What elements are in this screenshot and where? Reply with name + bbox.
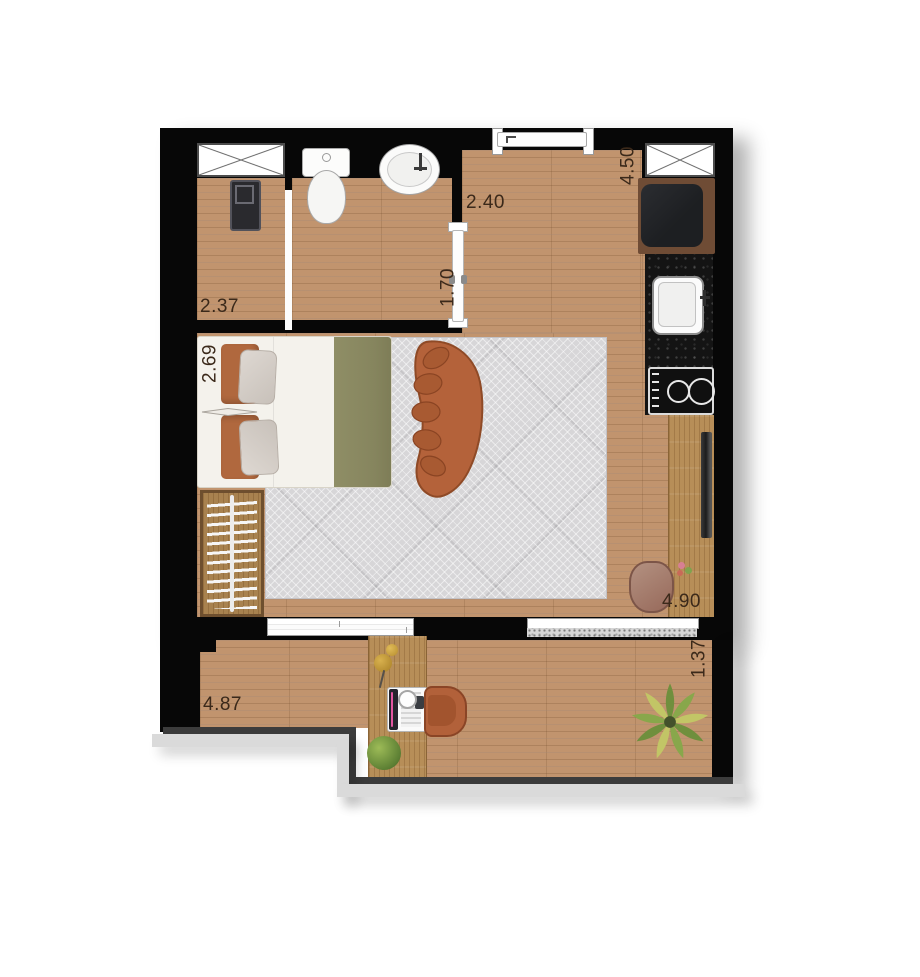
desk-lamp-icon: [372, 642, 398, 672]
toilet-flush-button: [322, 153, 331, 162]
fridge-icon: [641, 184, 703, 247]
kitchen-sink-icon: [652, 276, 704, 335]
balcony-wall-notch: [200, 640, 216, 652]
window-icon-kitchen: [645, 143, 715, 177]
washbasin-faucet-handle: [414, 167, 427, 170]
parapet-band-left: [152, 734, 349, 747]
bed-icon: [197, 336, 392, 488]
coffee-mug: [398, 690, 417, 709]
parapet-edge-step: [349, 727, 356, 784]
kitchen-faucet-handle: [703, 290, 706, 306]
bar-counter-icon: [668, 415, 714, 617]
dim-label-bed-wall: 2.69: [201, 333, 220, 395]
slider-tick-1: [339, 621, 340, 627]
balcony-right-wall: [712, 640, 733, 784]
toilet-bowl: [307, 170, 346, 224]
bar-shelf-strip: [701, 432, 712, 538]
slider-tick-2: [406, 627, 407, 633]
dim-label-laundry: 2.37: [200, 297, 239, 316]
closet-rail: [230, 495, 234, 612]
entry-floor: [462, 150, 642, 333]
office-chair-icon: [424, 686, 467, 737]
fridge-cabinet: [638, 178, 715, 254]
window-icon-laundry: [197, 143, 285, 177]
flower-petal-pink: [678, 562, 685, 569]
palm-plant-icon: [628, 680, 712, 764]
wardrobe-hangers-icon: [200, 490, 264, 617]
stool-icon-1: [629, 511, 670, 557]
cooktop-burner-large: [688, 378, 715, 405]
washing-machine-icon: [230, 180, 261, 231]
sofa-icon: [392, 338, 487, 500]
dim-label-bath-opening: 1.70: [439, 257, 458, 319]
blanket-olive: [334, 337, 391, 487]
bar-flower-decor: [676, 560, 694, 578]
kitchen-sink-basin: [658, 282, 696, 327]
dim-label-living: 4.90: [662, 592, 701, 611]
dim-label-balcony-depth: 1.37: [690, 628, 709, 690]
duvet-split-marker: [200, 407, 260, 417]
laptop-screen: [389, 689, 398, 730]
balcony-left-wall: [160, 640, 200, 732]
dim-label-kitchen: 4.50: [619, 135, 638, 197]
cooktop-burner-small: [667, 380, 690, 403]
parapet-edge-left: [163, 727, 356, 734]
entry-door-icon: [497, 132, 587, 147]
entry-door-handle-stem: [506, 136, 508, 143]
dim-label-balcony-width: 4.87: [203, 695, 242, 714]
floor-plan: 2.37 1.70 2.40 4.50 2.69 4.90 1.37 4.87: [0, 0, 920, 977]
pillow-icon-bottom: [239, 419, 280, 476]
parapet-edge-bottom: [349, 777, 733, 784]
cooktop-controls: [652, 373, 659, 409]
washer-lid: [235, 185, 254, 204]
pocket-door-handle-2: [461, 275, 467, 284]
dim-label-entry: 2.40: [466, 193, 505, 212]
flower-leaf-green: [685, 567, 692, 574]
sliding-door-sill: [527, 628, 697, 637]
cooktop-icon: [648, 367, 714, 415]
flower-petal-red: [677, 570, 683, 576]
washbasin-icon: [379, 144, 440, 195]
laptop-screen-glow: [391, 692, 393, 727]
lamp-shade-small: [386, 644, 398, 656]
plant-icon-desk: [367, 736, 401, 770]
laundry-bath-partition: [285, 190, 292, 330]
parapet-band-bottom: [337, 784, 745, 797]
chair-seat: [428, 695, 456, 726]
pillow-icon-top: [238, 349, 278, 405]
sliding-door-icon-left: [267, 618, 414, 636]
